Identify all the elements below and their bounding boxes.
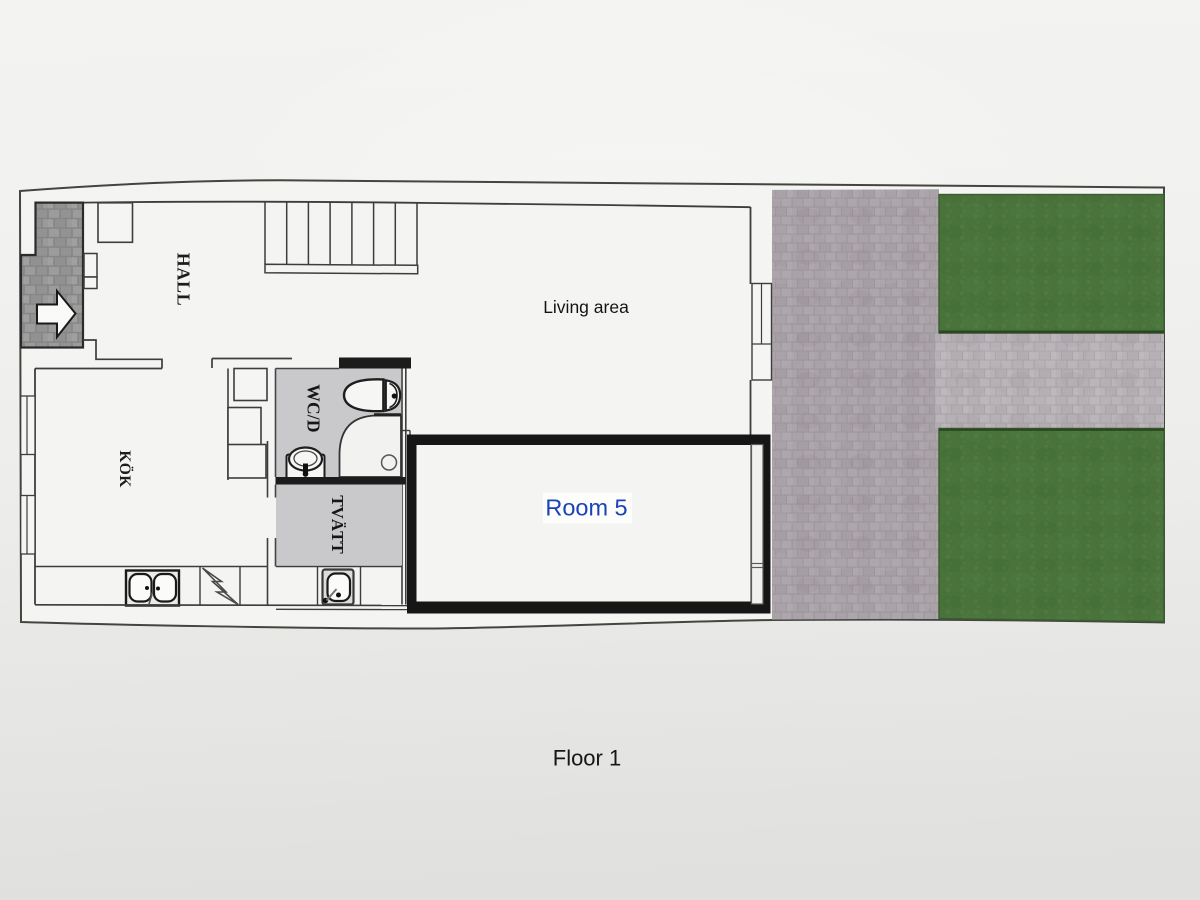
svg-text:TVÄTT: TVÄTT [328, 495, 347, 554]
svg-text:Floor 1: Floor 1 [553, 746, 621, 771]
svg-text:HALL: HALL [173, 253, 193, 306]
svg-text:WC/D: WC/D [303, 384, 323, 432]
svg-text:Living area: Living area [543, 297, 629, 317]
svg-text:KÖK: KÖK [116, 450, 133, 487]
svg-text:Room 5: Room 5 [545, 495, 627, 521]
